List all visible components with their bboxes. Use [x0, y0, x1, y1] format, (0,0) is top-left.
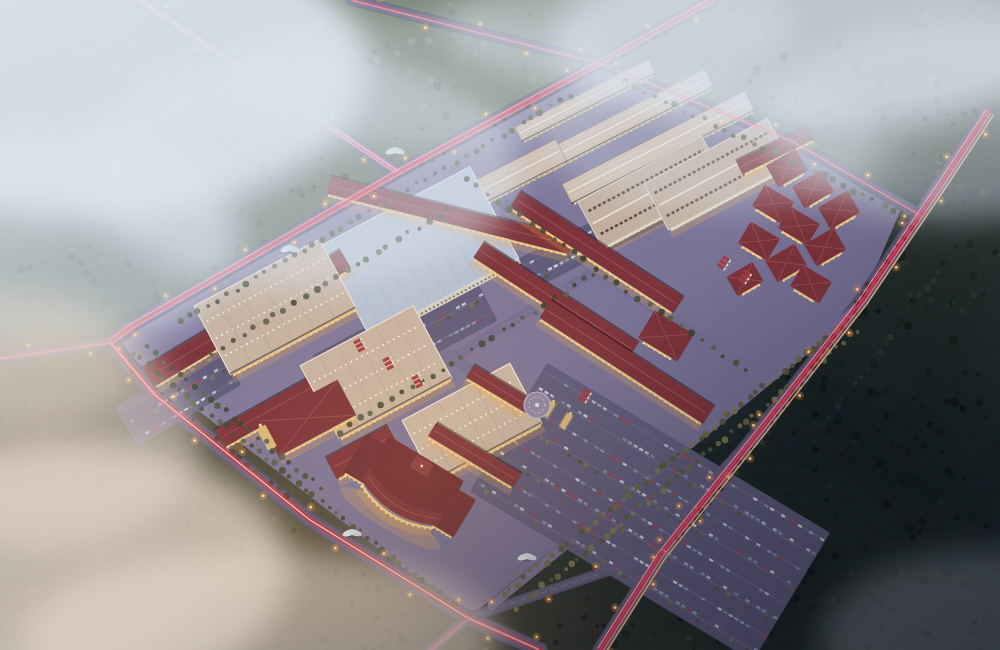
rendering-canvas [0, 0, 1000, 650]
aerial-rendering-industrial-park [0, 0, 1000, 650]
color-grade [0, 0, 1000, 650]
vignette-overlay [0, 0, 1000, 650]
